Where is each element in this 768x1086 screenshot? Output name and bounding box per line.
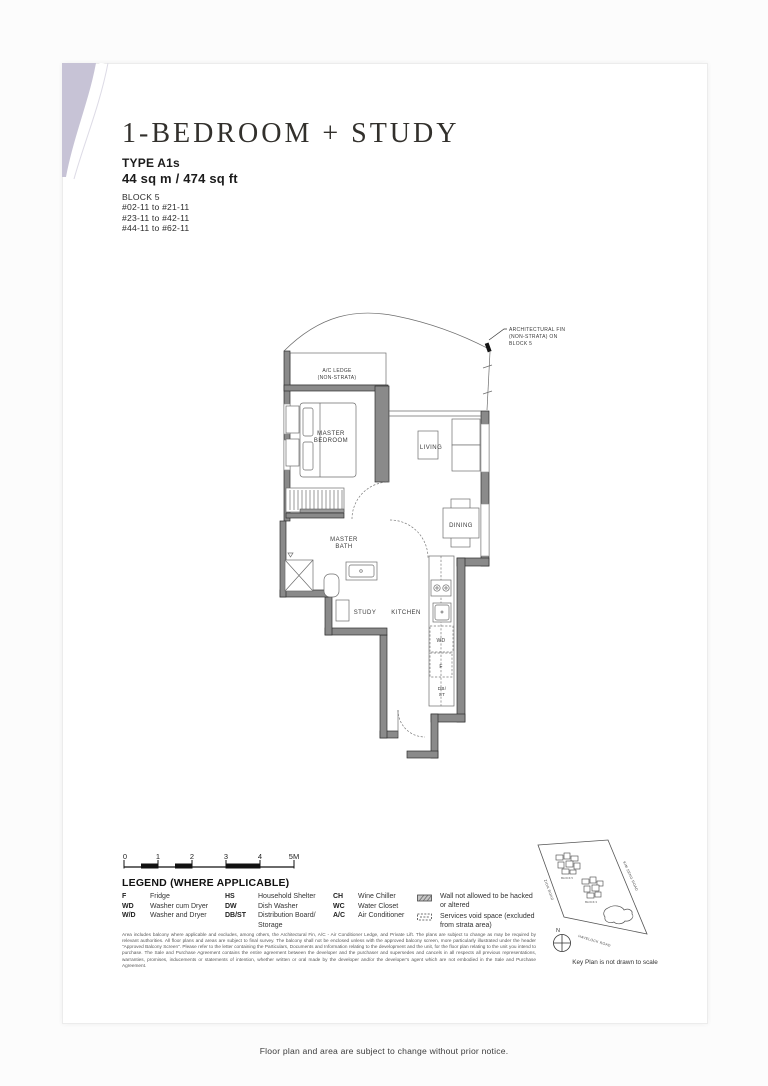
footer-note: Floor plan and area are subject to chang… <box>0 1046 768 1056</box>
legend-desc: Fridge <box>150 892 170 902</box>
legend-desc: Water Closet <box>358 902 398 912</box>
legend-column-1: FFridge WDWasher cum Dryer W/DWasher and… <box>122 892 222 921</box>
svg-text:BEDROOM: BEDROOM <box>314 438 348 444</box>
svg-text:(NON-STRATA) ON: (NON-STRATA) ON <box>509 334 558 340</box>
svg-text:4: 4 <box>258 852 262 861</box>
kitchen-counter <box>429 556 454 706</box>
keyplan-block-label: BLOCK 3 <box>585 900 597 904</box>
dining-label: DINING <box>449 523 473 529</box>
kitchen-label: KITCHEN <box>391 610 421 616</box>
scale-bar-segments <box>141 864 260 869</box>
svg-text:ARCHITECTURAL FIN: ARCHITECTURAL FIN <box>509 327 565 333</box>
hatched-wall-icon <box>417 894 432 911</box>
legend-title: LEGEND (WHERE APPLICABLE) <box>122 877 289 889</box>
block-info: BLOCK 5 #02-11 to #21-11 #23-11 to #42-1… <box>122 192 189 234</box>
legend-abbr: CH <box>333 892 358 902</box>
block-cluster-2 <box>582 877 603 898</box>
keyplan-caption: Key Plan is not drawn to scale <box>572 959 658 966</box>
svg-text:3: 3 <box>224 852 228 861</box>
master-bedroom-label: MASTER <box>317 431 345 437</box>
unit-type: TYPE A1s <box>122 156 180 170</box>
legend-abbr: W/D <box>122 911 150 921</box>
sofa <box>452 419 480 471</box>
dbst-label: DB/ <box>438 686 447 691</box>
legend-abbr: WD <box>122 902 150 912</box>
master-bath-label: MASTER <box>330 537 358 543</box>
wardrobe <box>286 488 344 513</box>
study-desk <box>336 600 349 621</box>
toilet <box>324 574 339 597</box>
petal-decoration <box>62 63 112 181</box>
svg-text:(NON-STRATA): (NON-STRATA) <box>318 375 357 381</box>
scale-bar: 0 1 2 3 4 5M <box>122 852 302 874</box>
legend-abbr: F <box>122 892 150 902</box>
unit-range: #02-11 to #21-11 <box>122 202 189 212</box>
page-title: 1-BEDROOM + STUDY <box>122 118 459 150</box>
road-label-kim-seng: KIM SENG ROAD <box>622 861 639 892</box>
legend-desc: Washer and Dryer <box>150 911 207 921</box>
svg-text:1: 1 <box>156 852 160 861</box>
compass-north-label: N <box>556 928 560 934</box>
svg-text:2: 2 <box>190 852 194 861</box>
unit-range: #23-11 to #42-11 <box>122 213 189 223</box>
petal-shape <box>62 63 96 177</box>
svg-text:ST: ST <box>439 692 445 697</box>
legend-desc: Dish Washer <box>258 902 326 912</box>
legend-symbols: Wall not allowed to be hacked or altered… <box>417 892 537 932</box>
unit-range: #44-11 to #62-11 <box>122 223 189 233</box>
wd-label: WD <box>437 638 446 644</box>
key-plan: BLOCK 5 BLOCK 3 ZION ROAD KIM SENG ROAD … <box>520 838 710 973</box>
legend-desc: Distribution Board/ Storage <box>258 911 326 930</box>
fin-callout: ARCHITECTURAL FIN (NON-STRATA) ON BLOCK … <box>485 327 566 352</box>
landscape-feature <box>604 906 633 924</box>
unit-area: 44 sq m / 474 sq ft <box>122 171 238 186</box>
block-label: BLOCK 5 <box>122 192 189 202</box>
study-label: STUDY <box>354 610 377 616</box>
legend-desc: Wine Chiller <box>358 892 396 902</box>
living-label: LIVING <box>420 445 442 451</box>
page: 1-BEDROOM + STUDY TYPE A1s 44 sq m / 474… <box>0 0 768 1086</box>
legend-desc: Air Conditioner <box>358 911 404 921</box>
road-label-zion: ZION ROAD <box>543 879 554 901</box>
svg-text:BLOCK 5: BLOCK 5 <box>509 341 532 347</box>
shower <box>285 553 313 591</box>
svg-text:0: 0 <box>123 852 127 861</box>
legend-column-3: CHWine Chiller WCWater Closet A/CAir Con… <box>333 892 423 921</box>
keyplan-block-label: BLOCK 5 <box>561 876 573 880</box>
svg-text:BATH: BATH <box>335 544 352 550</box>
services-void-icon <box>417 913 432 930</box>
legend-abbr: DW <box>225 902 258 912</box>
legend-abbr: A/C <box>333 911 358 921</box>
legend-desc: Washer cum Dryer <box>150 902 208 912</box>
legend-abbr: HS <box>225 892 258 902</box>
compass: N <box>554 928 571 952</box>
legend-desc: Household Shelter <box>258 892 326 902</box>
ac-ledge-label: A/C LEDGE <box>322 368 352 374</box>
road-label-havelock: HAVELOCK ROAD <box>578 934 612 948</box>
legend-abbr: WC <box>333 902 358 912</box>
svg-text:5M: 5M <box>289 852 299 861</box>
legend-column-2: HSHousehold Shelter DWDish Washer DB/STD… <box>225 892 328 930</box>
scale-bar-labels: 0 1 2 3 4 5M <box>123 852 299 861</box>
vanity-sink <box>346 562 377 580</box>
disclaimer-text: Area includes balcony where applicable a… <box>122 932 536 969</box>
legend-abbr: DB/ST <box>225 911 258 930</box>
block-cluster-1 <box>556 853 580 874</box>
floor-plan: A/C LEDGE (NON-STRATA) MASTER BEDROOM LI… <box>268 303 572 768</box>
fridge-label: F <box>439 664 442 670</box>
